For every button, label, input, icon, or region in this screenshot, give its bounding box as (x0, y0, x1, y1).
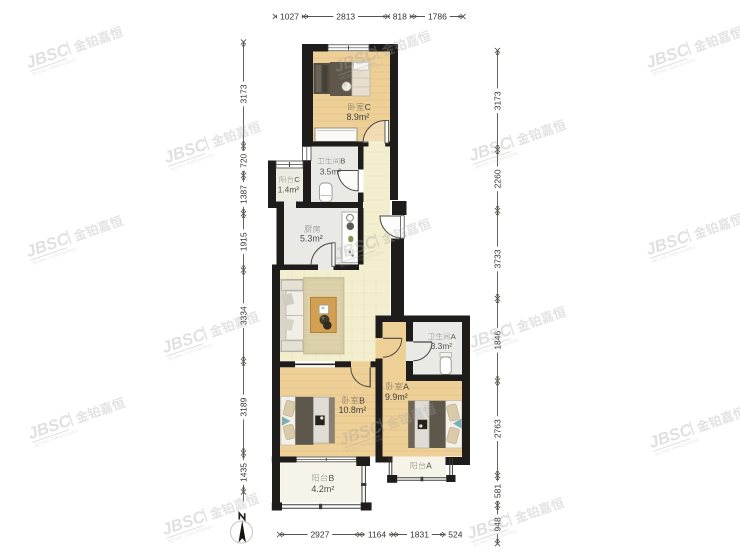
svg-text:1435: 1435 (239, 463, 249, 482)
svg-text:B: B (329, 473, 335, 483)
svg-text:3.3m²: 3.3m² (431, 341, 453, 351)
svg-text:2763: 2763 (493, 419, 503, 438)
svg-text:1164: 1164 (368, 530, 387, 540)
svg-text:C: C (365, 102, 371, 112)
svg-text:1.4m²: 1.4m² (278, 184, 300, 194)
svg-text:C: C (294, 175, 300, 184)
svg-text:1831: 1831 (410, 530, 429, 540)
svg-text:9.9m²: 9.9m² (385, 392, 408, 402)
svg-text:3189: 3189 (239, 397, 249, 416)
svg-text:B: B (359, 395, 365, 405)
svg-text:A: A (403, 381, 409, 391)
svg-text:3173: 3173 (493, 91, 503, 110)
svg-text:B: B (340, 157, 345, 166)
svg-text:581: 581 (493, 484, 503, 498)
svg-text:1027: 1027 (280, 12, 299, 22)
svg-text:1387: 1387 (239, 185, 249, 204)
svg-text:4.2m²: 4.2m² (311, 484, 334, 494)
svg-text:524: 524 (448, 530, 462, 540)
svg-text:5.3m²: 5.3m² (300, 234, 323, 244)
svg-text:818: 818 (393, 12, 407, 22)
svg-text:2260: 2260 (493, 169, 503, 188)
svg-text:3.5m²: 3.5m² (320, 166, 342, 176)
svg-text:2813: 2813 (336, 12, 355, 22)
svg-text:3733: 3733 (493, 249, 503, 268)
svg-text:2927: 2927 (310, 530, 329, 540)
svg-text:A: A (426, 461, 432, 470)
svg-text:1915: 1915 (239, 232, 249, 251)
svg-text:A: A (451, 332, 457, 341)
svg-text:10.8m²: 10.8m² (339, 405, 367, 415)
svg-text:3173: 3173 (239, 84, 249, 103)
svg-text:720: 720 (239, 153, 249, 167)
svg-text:8.9m²: 8.9m² (347, 112, 370, 122)
svg-text:1786: 1786 (428, 12, 447, 22)
